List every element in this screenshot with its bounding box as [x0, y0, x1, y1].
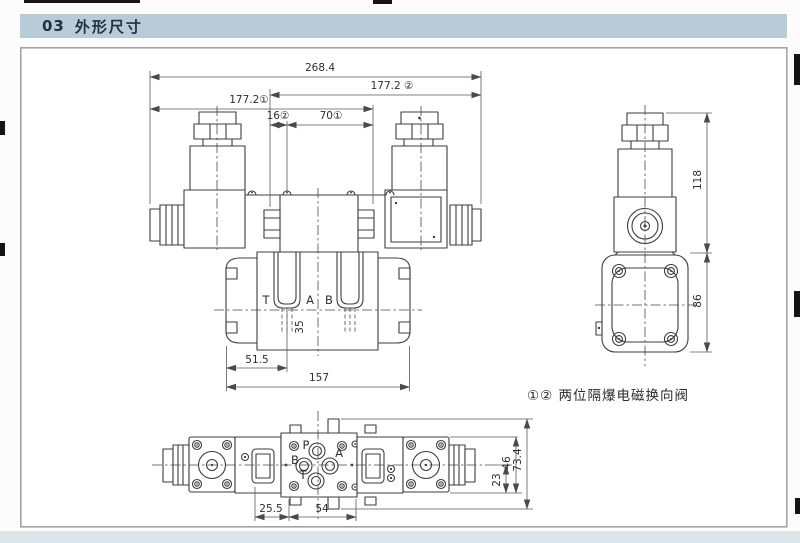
left-tube-nut	[264, 210, 280, 238]
right-connector-ribs	[450, 205, 472, 245]
valve-body-block	[280, 195, 358, 252]
right-solenoid-coil	[392, 146, 447, 190]
dim-total-width-label: 268.4	[305, 62, 335, 74]
catalog-page: { "header": { "section_no": "03", "title…	[0, 0, 800, 543]
bottom-left-solenoid	[163, 437, 235, 492]
dim-54-label: 54	[315, 503, 329, 515]
left-solenoid-coil	[190, 146, 245, 190]
bottom-right-cap	[465, 449, 475, 482]
front-port-t-label: T	[261, 293, 270, 307]
bottom-port-p-label: P	[303, 438, 310, 452]
bottom-port-a-label: A	[335, 446, 343, 460]
right-connector-cap	[472, 209, 481, 241]
dim-23-label: 23	[491, 473, 503, 486]
dim-width-variant1-label: 177.2①	[229, 94, 268, 106]
subplate-body	[257, 252, 378, 350]
dim-offset-16-label: 16②	[267, 110, 290, 122]
left-connector-cap	[150, 209, 160, 241]
dim-73-4-label: 73.4	[512, 448, 524, 472]
dim-25-5-label: 25.5	[259, 503, 282, 515]
front-port-b-label: B	[325, 293, 333, 307]
front-port-a-label: A	[306, 293, 314, 307]
bottom-port-t-label: T	[298, 468, 307, 482]
bottom-right-solenoid	[403, 437, 475, 492]
valve-end-view	[596, 252, 688, 352]
dim-157-label: 157	[309, 372, 329, 384]
right-nameplate	[391, 197, 441, 242]
right-tube-nut	[358, 210, 374, 238]
dim-51-5-label: 51.5	[245, 354, 268, 366]
technical-drawing-panel: T A B 35 268.4 177.2 ② 177.2① 16	[0, 0, 800, 543]
dim-86-label: 86	[692, 294, 704, 308]
dim-35-label: 35	[294, 320, 306, 333]
bottom-left-cap	[163, 449, 173, 482]
left-solenoid-lower-body	[184, 190, 245, 248]
dim-118-label: 118	[692, 170, 704, 190]
figure-caption: ①② 两位隔爆电磁换向阀	[527, 388, 689, 404]
dim-offset-70-label: 70①	[320, 110, 343, 122]
dim-width-variant2-label: 177.2 ②	[371, 80, 414, 92]
